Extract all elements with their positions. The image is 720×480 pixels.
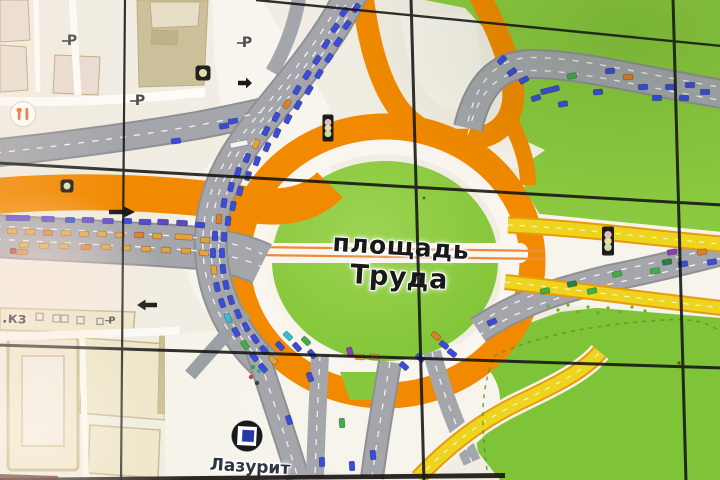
bezel-vertical-1 bbox=[121, 0, 125, 480]
bezel-horizontal-3 bbox=[0, 345, 720, 368]
bezel-horizontal-2 bbox=[0, 163, 720, 205]
video-wall-bezels bbox=[0, 0, 720, 480]
bezel-glint bbox=[423, 197, 426, 200]
bezel-bottom-edge-glow bbox=[0, 474, 58, 480]
video-wall-photo: PPPP площадь Труда Лазурит .кз bbox=[0, 0, 720, 480]
bezel-glint bbox=[677, 361, 680, 364]
bezel-bottom-edge bbox=[0, 473, 505, 480]
bezel-vertical-3 bbox=[673, 0, 686, 480]
bezel-horizontal-1 bbox=[256, 0, 720, 46]
bezel-vertical-2 bbox=[411, 0, 424, 480]
